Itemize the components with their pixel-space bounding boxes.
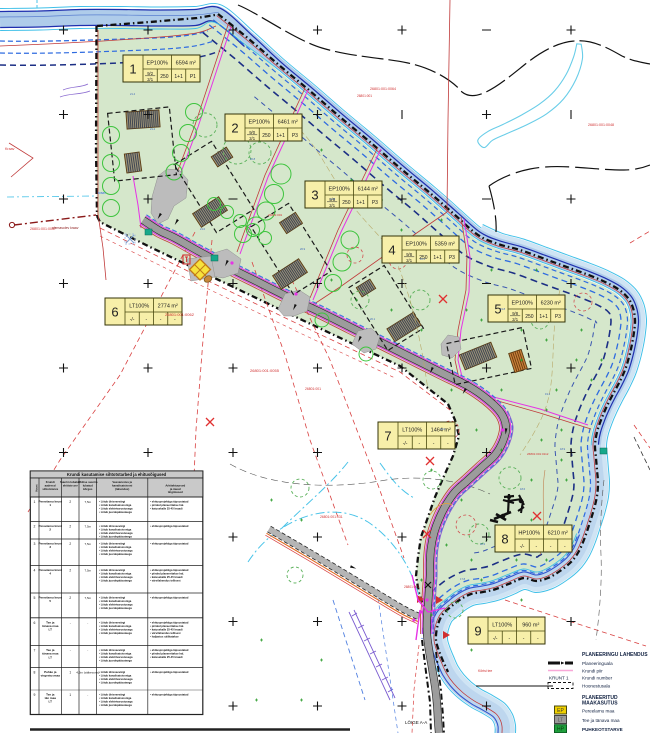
svg-text:7,5m: 7,5m (84, 542, 91, 546)
svg-text:• ehitusprojektiga täpsustatud: • ehitusprojektiga täpsustatud (150, 693, 189, 697)
svg-text:• ehitusprojektiga täpsustatud: • ehitusprojektiga täpsustatud (150, 596, 189, 600)
svg-text:• Liitub ühisveevärgi: • Liitub ühisveevärgi (99, 693, 125, 697)
svg-text:• Liitub kanalisatsiooniga: • Liitub kanalisatsiooniga (99, 545, 132, 549)
svg-text:• Liitub elektrivarustusega: • Liitub elektrivarustusega (99, 603, 133, 607)
svg-text:Tee ja tänava maa: Tee ja tänava maa (582, 718, 620, 723)
svg-text:• Liitub kanalisatsiooniga: • Liitub kanalisatsiooniga (99, 503, 132, 507)
svg-text:7,5m: 7,5m (84, 569, 91, 573)
svg-text:7,5m: 7,5m (84, 596, 91, 600)
svg-text:• Liitub juurdepääsuteega: • Liitub juurdepääsuteega (99, 703, 132, 707)
svg-text:• Liitub juurdepääsuteega: • Liitub juurdepääsuteega (99, 579, 132, 583)
svg-text:20.1: 20.1 (370, 317, 376, 321)
svg-text:1+1: 1+1 (356, 200, 365, 206)
svg-text:Krundi piir: Krundi piir (582, 669, 603, 674)
svg-text:LT: LT (49, 655, 53, 659)
svg-text:5: 5 (34, 596, 36, 600)
svg-text:26801:001: 26801:001 (305, 387, 321, 391)
svg-text:P3: P3 (449, 255, 455, 261)
svg-text:-/-: -/- (493, 636, 498, 642)
svg-text:26801:001:0064: 26801:001:0064 (370, 87, 396, 91)
svg-text:• katusekalle 25-45 kraadi: • katusekalle 25-45 kraadi (150, 507, 183, 511)
svg-text:26801:001:0048: 26801:001:0048 (588, 123, 614, 127)
svg-text:virgestusmaa: virgestusmaa (41, 674, 61, 678)
svg-text:19.0: 19.0 (440, 427, 446, 431)
svg-text:• Liitub juurdepääsuteega: • Liitub juurdepääsuteega (99, 659, 132, 663)
svg-text:7: 7 (34, 649, 36, 653)
svg-text:26801:001: 26801:001 (357, 94, 372, 98)
svg-text:6: 6 (111, 305, 118, 320)
svg-text:Kraav: Kraav (5, 147, 15, 151)
svg-text:• Liitub kanalisatsiooniga: • Liitub kanalisatsiooniga (99, 528, 132, 532)
svg-text:• katusekalle 25-45 kraadi: • katusekalle 25-45 kraadi (150, 575, 183, 579)
svg-text:• Liitub juurdepääsuteega: • Liitub juurdepääsuteega (99, 535, 132, 539)
svg-text:6144 m²: 6144 m² (358, 187, 378, 193)
svg-text:(lahendus): (lahendus) (115, 487, 129, 491)
svg-text:-: - (87, 693, 88, 697)
svg-text:• ehitusprojektiga täpsustatud: • ehitusprojektiga täpsustatud (150, 670, 189, 674)
svg-text:17.8: 17.8 (460, 577, 466, 581)
svg-text:tingimused: tingimused (168, 490, 183, 494)
svg-text:HP100%: HP100% (518, 531, 540, 537)
svg-text:-/-: -/- (130, 317, 135, 323)
svg-text:P3: P3 (372, 200, 378, 206)
svg-text:6210 m²: 6210 m² (548, 531, 568, 537)
svg-text:Kõrtsi tee: Kõrtsi tee (478, 669, 492, 673)
svg-text:• Liitub juurdepääsuteega: • Liitub juurdepääsuteega (99, 510, 132, 514)
svg-text:1: 1 (129, 62, 136, 77)
svg-text:EP100%: EP100% (147, 61, 169, 67)
svg-text:• ehitusprojektiga täpsustatud: • ehitusprojektiga täpsustatud (150, 648, 189, 652)
svg-text:• piirded planeeritakse hal.: • piirded planeeritakse hal. (150, 572, 184, 576)
svg-text:26801:001:031: 26801:001:031 (320, 515, 343, 519)
svg-text:LT: LT (49, 700, 53, 704)
svg-text:1+1: 1+1 (174, 74, 183, 80)
svg-text:Krundi number: Krundi number (582, 676, 613, 681)
svg-text:kraav: kraav (98, 191, 106, 195)
svg-text:• Liitub elektrivarustusega: • Liitub elektrivarustusega (99, 655, 133, 659)
svg-text:2: 2 (69, 500, 71, 504)
svg-text:• Liitub elektrivarustusega: • Liitub elektrivarustusega (99, 507, 133, 511)
svg-text:9: 9 (474, 624, 481, 639)
svg-text:8: 8 (34, 671, 36, 675)
svg-text:• Liitub juurdepääsuteega: • Liitub juurdepääsuteega (99, 631, 132, 635)
svg-text:4: 4 (34, 569, 36, 573)
svg-text:20.9: 20.9 (300, 247, 306, 251)
svg-text:2: 2 (231, 121, 238, 136)
svg-text:sihtotstarve: sihtotstarve (42, 487, 58, 491)
svg-text:• Liitub kanalisatsiooniga: • Liitub kanalisatsiooniga (99, 624, 132, 628)
svg-text:MAAKASUTUS: MAAKASUTUS (582, 701, 618, 707)
svg-text:20.4: 20.4 (420, 257, 426, 261)
svg-text:9/0: 9/0 (249, 130, 255, 135)
svg-text:21.5: 21.5 (330, 197, 336, 201)
svg-text:• Liitub juurdepääsuteega: • Liitub juurdepääsuteega (99, 552, 132, 556)
svg-text:PUHKEOTSTARVE: PUHKEOTSTARVE (582, 727, 623, 732)
svg-text:21.0: 21.0 (200, 227, 206, 231)
svg-text:• Liitub elektrivarustusega: • Liitub elektrivarustusega (99, 700, 133, 704)
svg-text:7: 7 (384, 429, 391, 444)
svg-text:• ehitusprojektiga täpsustatud: • ehitusprojektiga täpsustatud (150, 500, 189, 504)
svg-text:• Liitub elektrivarustusega: • Liitub elektrivarustusega (99, 627, 133, 631)
svg-text:P1: P1 (190, 74, 196, 80)
svg-text:• Liitub elektrivarustusega: • Liitub elektrivarustusega (99, 677, 133, 681)
svg-text:• Liitub ühisveevärgi: • Liitub ühisveevärgi (99, 670, 125, 674)
svg-text:26801:001: 26801:001 (404, 585, 419, 589)
svg-text:LT100%: LT100% (129, 304, 149, 310)
svg-text:• katusekalle 25-45 kraadi: • katusekalle 25-45 kraadi (150, 627, 183, 631)
svg-text:1+1: 1+1 (433, 255, 442, 261)
svg-text:• Liitub kanalisatsiooniga: • Liitub kanalisatsiooniga (99, 674, 132, 678)
svg-text:Hoonestusala: Hoonestusala (582, 684, 611, 689)
svg-text:18.9: 18.9 (560, 447, 566, 451)
svg-text:1: 1 (34, 500, 36, 504)
svg-text:1+1: 1+1 (539, 314, 548, 320)
svg-text:9: 9 (34, 693, 36, 697)
svg-text:21.2: 21.2 (150, 127, 156, 131)
svg-text:6230 m²: 6230 m² (541, 301, 561, 307)
svg-text:• värvilahendus tellisest: • värvilahendus tellisest (150, 579, 181, 583)
svg-text:2/1: 2/1 (147, 77, 153, 82)
svg-text:250: 250 (525, 314, 534, 320)
svg-text:3: 3 (311, 188, 318, 203)
svg-text:• Liitub kanalisatsiooniga: • Liitub kanalisatsiooniga (99, 696, 132, 700)
svg-text:-/-: -/- (520, 544, 525, 550)
svg-text:Krundi kasutamise sihtotstarbe: Krundi kasutamise sihtotstarbed ja ehitu… (67, 472, 167, 477)
svg-text:250: 250 (342, 200, 351, 206)
svg-text:• Liitub juurdepääsuteega: • Liitub juurdepääsuteega (99, 606, 132, 610)
svg-text:LT: LT (49, 628, 53, 632)
svg-text:ehitiste arv: ehitiste arv (63, 483, 78, 487)
svg-text:• Liitub ühisveevärgi: • Liitub ühisveevärgi (99, 648, 125, 652)
svg-text:LT100%: LT100% (492, 623, 512, 629)
svg-text:1: 1 (69, 671, 71, 675)
svg-text:2/1: 2/1 (249, 136, 255, 141)
svg-text:26801:001: 26801:001 (268, 213, 283, 217)
svg-text:EP100%: EP100% (249, 120, 271, 126)
svg-text:2774 m²: 2774 m² (158, 304, 178, 310)
svg-text:• Liitub elektrivarustusega: • Liitub elektrivarustusega (99, 549, 133, 553)
svg-text:Pereelamu maa: Pereelamu maa (582, 709, 615, 714)
svg-text:EP: EP (557, 708, 564, 714)
svg-text:• Liitub ühisveevärgi: • Liitub ühisveevärgi (99, 524, 125, 528)
svg-text:-: - (87, 621, 88, 625)
svg-text:• ehitusprojektiga täpsustatud: • ehitusprojektiga täpsustatud (150, 524, 189, 528)
svg-text:EP100%: EP100% (512, 301, 534, 307)
svg-text:• Liitub ühisveevärgi: • Liitub ühisveevärgi (99, 542, 125, 546)
svg-text:HP: HP (557, 727, 565, 733)
svg-text:-: - (70, 621, 71, 625)
svg-text:KRUNT 1: KRUNT 1 (549, 676, 569, 681)
svg-text:EP100%: EP100% (329, 187, 351, 193)
svg-text:2: 2 (69, 569, 71, 573)
svg-text:EP100%: EP100% (406, 242, 428, 248)
svg-text:2/1: 2/1 (512, 317, 518, 322)
svg-text:LT100%: LT100% (402, 428, 422, 434)
svg-text:8: 8 (501, 532, 508, 547)
svg-text:6461 m²: 6461 m² (278, 120, 298, 126)
svg-text:18.2: 18.2 (480, 542, 486, 546)
svg-text:• Liitub kanalisatsiooniga: • Liitub kanalisatsiooniga (99, 572, 132, 576)
svg-text:2/1: 2/1 (329, 203, 335, 208)
svg-text:250: 250 (262, 133, 271, 139)
svg-text:LT: LT (558, 718, 563, 724)
svg-text:• Liitub elektrivarustusega: • Liitub elektrivarustusega (99, 531, 133, 535)
svg-text:P3: P3 (555, 314, 561, 320)
svg-text:4,5m (väikevorm): 4,5m (väikevorm) (76, 671, 99, 675)
svg-text:• Liitub ühisveevärgi: • Liitub ühisveevärgi (99, 596, 125, 600)
svg-text:9/2: 9/2 (147, 71, 153, 76)
svg-text:• Liitub elektrivarustusega: • Liitub elektrivarustusega (99, 575, 133, 579)
svg-text:2: 2 (69, 542, 71, 546)
svg-text:• piirded planeeritakse hal.: • piirded planeeritakse hal. (150, 624, 184, 628)
svg-text:• ehitusprojektiga täpsustatud: • ehitusprojektiga täpsustatud (150, 568, 189, 572)
svg-text:• ehitusprojektiga täpsustatud: • ehitusprojektiga täpsustatud (150, 620, 189, 624)
svg-text:1+1: 1+1 (276, 133, 285, 139)
svg-text:• katusekalle 25-45 kraadi: • katusekalle 25-45 kraadi (150, 655, 183, 659)
svg-text:3: 3 (34, 542, 36, 546)
svg-text:18.6: 18.6 (520, 487, 526, 491)
svg-text:21.4: 21.4 (130, 92, 136, 96)
svg-text:kõrgus: kõrgus (83, 487, 93, 491)
svg-text:4: 4 (388, 243, 395, 258)
svg-text:• ehitusprojektiga täpsustatud: • ehitusprojektiga täpsustatud (150, 542, 189, 546)
svg-text:• Liitub kanalisatsiooniga: • Liitub kanalisatsiooniga (99, 652, 132, 656)
svg-text:• Liitub ühisveevärgi: • Liitub ühisveevärgi (99, 568, 125, 572)
svg-text:Planeeringuala: Planeeringuala (582, 661, 613, 666)
svg-text:olemasolev kraav: olemasolev kraav (52, 226, 79, 230)
svg-text:LÕIGE A-A: LÕIGE A-A (405, 719, 427, 725)
svg-text:960 m²: 960 m² (522, 623, 539, 629)
svg-text:1: 1 (69, 693, 71, 697)
svg-text:Krunt: Krunt (35, 484, 39, 491)
svg-text:250: 250 (160, 74, 169, 80)
svg-text:26801:001:0112: 26801:001:0112 (527, 452, 549, 456)
svg-text:26801:001:0055: 26801:001:0055 (250, 368, 280, 373)
svg-text:19.2: 19.2 (545, 392, 551, 396)
svg-text:9/8: 9/8 (406, 252, 412, 257)
svg-text:• haljastus säilitatakse: • haljastus säilitatakse (150, 634, 179, 638)
svg-text:-: - (70, 649, 71, 653)
svg-text:-/-: -/- (403, 441, 408, 447)
svg-text:PLANEERINGU LAHENDUS: PLANEERINGU LAHENDUS (582, 652, 648, 658)
svg-text:26801:001:0062: 26801:001:0062 (165, 312, 195, 317)
svg-text:• värvilahendus tellisest: • värvilahendus tellisest (150, 631, 181, 635)
svg-text:6594 m²: 6594 m² (176, 61, 196, 67)
svg-text:• Liitub kanalisatsiooniga: • Liitub kanalisatsiooniga (99, 599, 132, 603)
svg-text:• piirded planeeritakse hal.: • piirded planeeritakse hal. (150, 652, 184, 656)
svg-text:19.8: 19.8 (500, 307, 506, 311)
svg-text:• Liitub ühisveevärgi: • Liitub ühisveevärgi (99, 500, 125, 504)
svg-text:• piirded planeeritakse hal.: • piirded planeeritakse hal. (150, 503, 184, 507)
svg-text:7,5m: 7,5m (84, 525, 91, 529)
svg-text:• Liitub ühisveevärgi: • Liitub ühisveevärgi (99, 620, 125, 624)
svg-text:9/8: 9/8 (512, 311, 518, 316)
svg-text:2: 2 (34, 525, 36, 529)
svg-text:7,5m: 7,5m (84, 500, 91, 504)
svg-text:5359 m²: 5359 m² (435, 242, 455, 248)
svg-text:2/1: 2/1 (406, 258, 412, 263)
svg-text:-: - (87, 649, 88, 653)
svg-text:• Liitub juurdepääsuteega: • Liitub juurdepääsuteega (99, 681, 132, 685)
svg-text:6: 6 (34, 621, 36, 625)
svg-text:2: 2 (69, 596, 71, 600)
svg-text:20.8: 20.8 (250, 157, 256, 161)
svg-text:P3: P3 (292, 133, 298, 139)
svg-text:2: 2 (69, 525, 71, 529)
